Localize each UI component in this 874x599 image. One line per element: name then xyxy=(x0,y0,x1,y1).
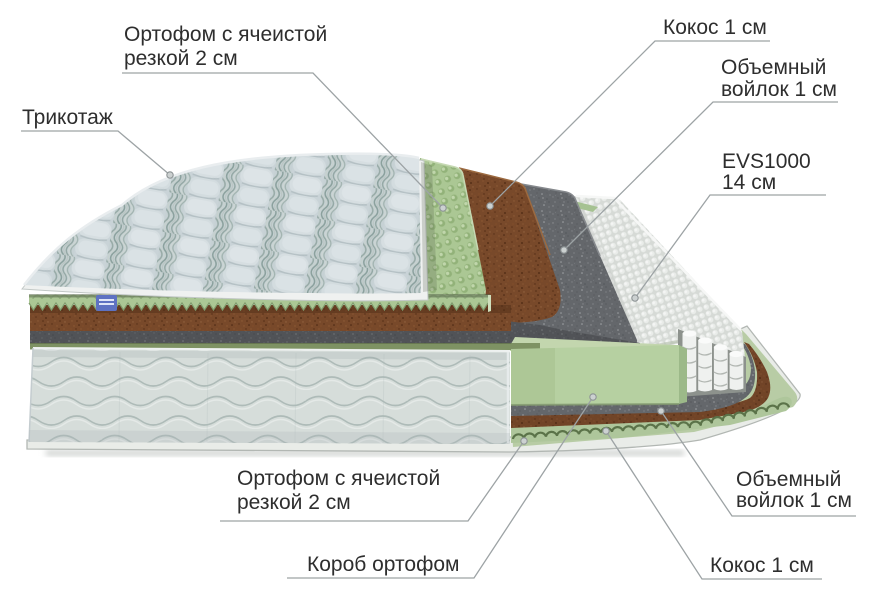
svg-text:резкой 2 см: резкой 2 см xyxy=(124,47,238,70)
svg-text:14 см: 14 см xyxy=(722,171,776,194)
svg-text:Кокос 1 см: Кокос 1 см xyxy=(663,16,767,39)
svg-text:EVS1000: EVS1000 xyxy=(722,150,811,173)
svg-text:войлок 1 см: войлок 1 см xyxy=(736,489,852,512)
svg-text:Ортофом с ячеистой: Ортофом с ячеистой xyxy=(124,23,327,46)
svg-text:Ортофом с ячеистой: Ортофом с ячеистой xyxy=(237,467,440,490)
svg-text:Трикотаж: Трикотаж xyxy=(22,106,113,129)
svg-text:Объемный: Объемный xyxy=(736,468,841,491)
svg-text:резкой 2 см: резкой 2 см xyxy=(237,491,351,514)
svg-text:Объемный: Объемный xyxy=(721,56,826,79)
svg-text:Короб ортофом: Короб ортофом xyxy=(307,553,460,576)
svg-text:Кокос 1 см: Кокос 1 см xyxy=(710,554,814,577)
svg-text:войлок 1 см: войлок 1 см xyxy=(721,78,837,101)
